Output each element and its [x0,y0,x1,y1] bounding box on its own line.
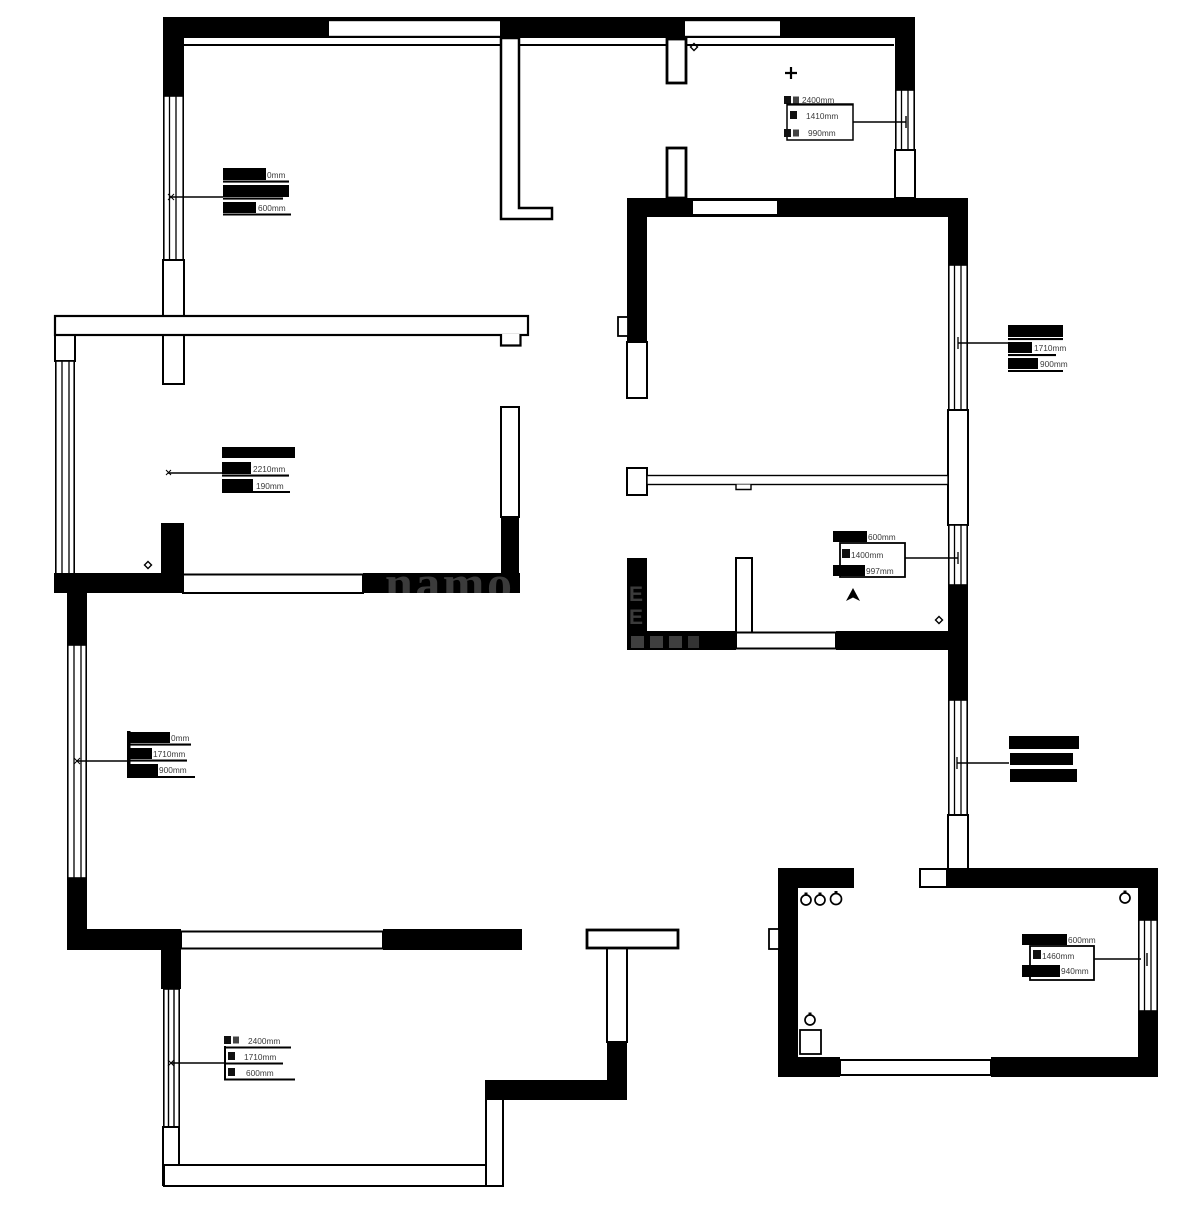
svg-text:0mm: 0mm [267,170,286,180]
svg-text:990mm: 990mm [808,128,836,138]
svg-text:1710mm: 1710mm [1034,343,1066,353]
svg-text:1400mm: 1400mm [851,550,883,560]
svg-text:900mm: 900mm [159,765,187,775]
svg-text:1410mm: 1410mm [806,111,838,121]
svg-text:1710mm: 1710mm [244,1052,276,1062]
svg-text:997mm: 997mm [866,566,894,576]
svg-text:190mm: 190mm [256,481,284,491]
svg-text:940mm: 940mm [1061,966,1089,976]
svg-text:600mm: 600mm [1068,935,1096,945]
svg-text:900mm: 900mm [1040,359,1068,369]
svg-text:600mm: 600mm [258,203,286,213]
svg-text:600mm: 600mm [246,1068,274,1078]
svg-text:1460mm: 1460mm [1042,951,1074,961]
svg-text:E: E [629,583,643,606]
svg-text:1710mm: 1710mm [153,749,185,759]
svg-text:2210mm: 2210mm [253,464,285,474]
svg-text:0mm: 0mm [171,733,190,743]
svg-text:E: E [629,606,643,629]
svg-text:600mm: 600mm [868,532,896,542]
svg-text:2400mm: 2400mm [248,1036,280,1046]
